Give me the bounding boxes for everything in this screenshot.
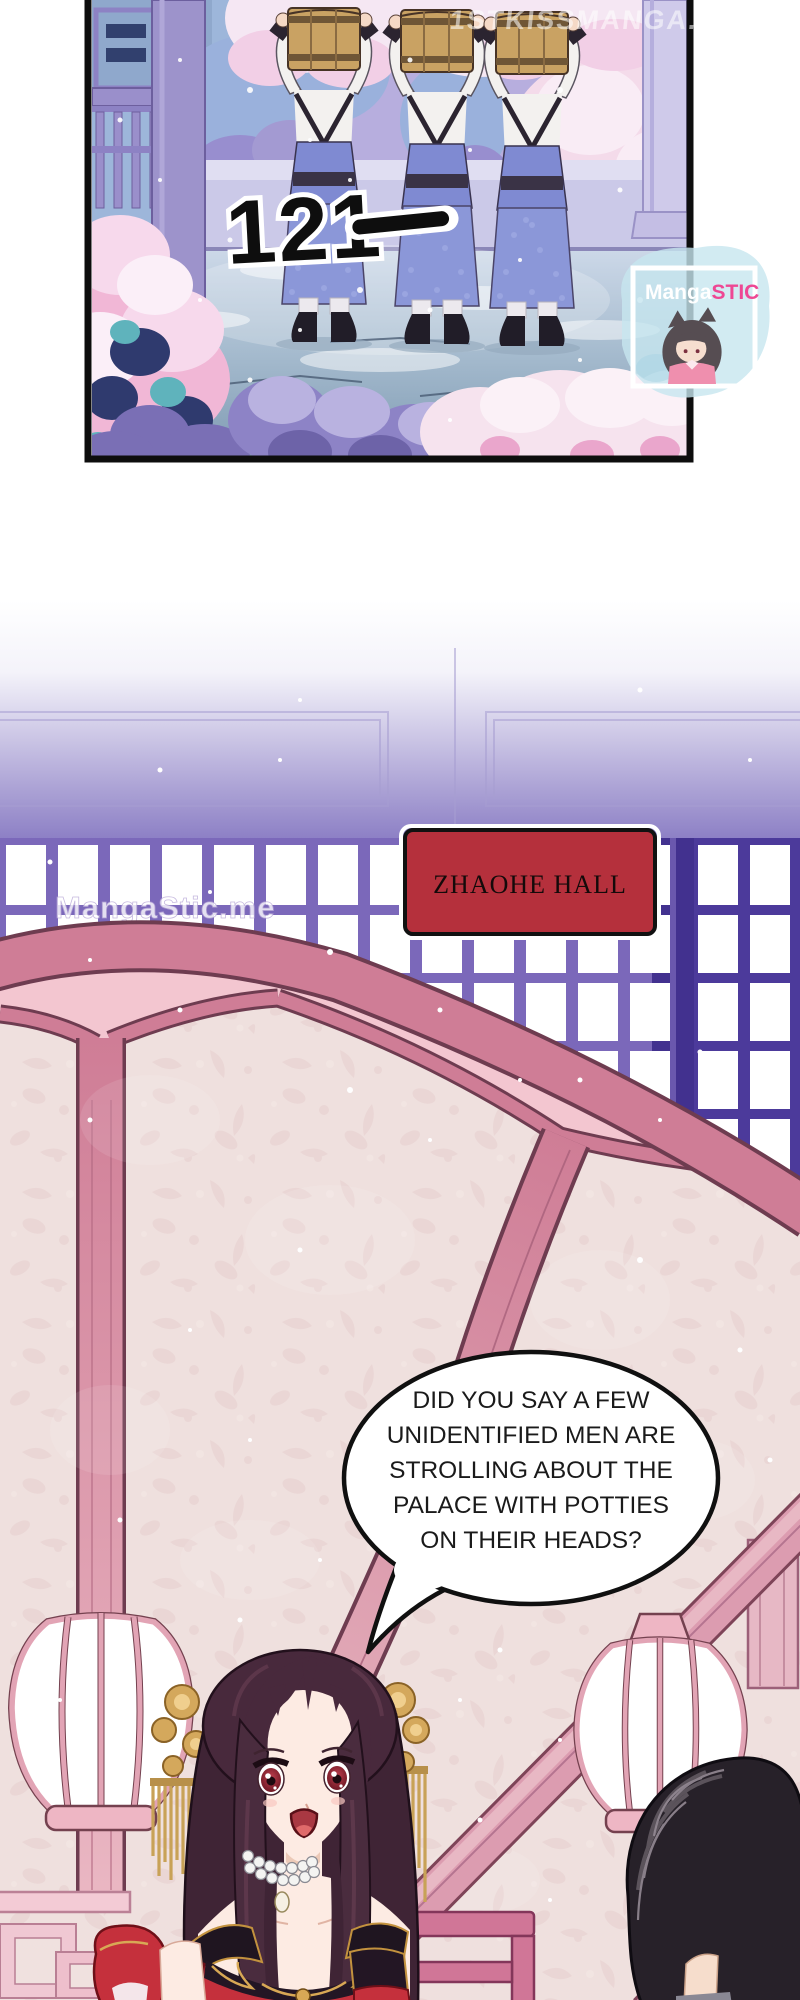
svg-text:PALACE WITH POTTIES: PALACE WITH POTTIES	[393, 1492, 669, 1519]
svg-text:1STKISSMANGA.IO: 1STKISSMANGA.IO	[448, 4, 732, 35]
svg-text:ON THEIR HEADS?: ON THEIR HEADS?	[420, 1527, 641, 1554]
svg-text:STROLLING ABOUT THE: STROLLING ABOUT THE	[389, 1457, 673, 1484]
svg-text:MangaSTIC: MangaSTIC	[645, 281, 759, 304]
svg-text:DID YOU SAY A FEW: DID YOU SAY A FEW	[413, 1387, 651, 1414]
svg-text:UNIDENTIFIED MEN ARE: UNIDENTIFIED MEN ARE	[387, 1422, 676, 1449]
svg-text:ZHAOHE HALL: ZHAOHE HALL	[433, 870, 627, 899]
svg-text:MangaStic.me: MangaStic.me	[55, 890, 275, 925]
